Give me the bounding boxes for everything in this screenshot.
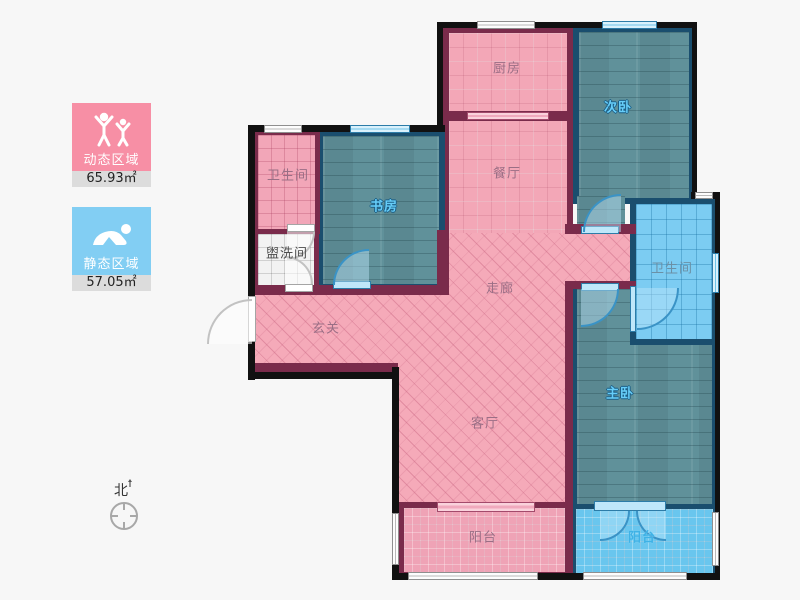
compass: 北 xyxy=(100,478,148,534)
entry-door-arc xyxy=(207,299,252,344)
label-corridor: 走廊 xyxy=(486,278,514,297)
label-dining: 餐厅 xyxy=(493,163,521,182)
outer-wall xyxy=(437,22,443,132)
label-bedroom-second: 次卧 xyxy=(604,97,632,116)
legend-static-label: 静态区域 xyxy=(83,253,139,275)
window xyxy=(602,21,657,29)
window xyxy=(712,512,719,566)
kitchen-pass-window xyxy=(467,112,549,120)
wall-east-spine xyxy=(565,281,573,580)
legend-static-area: 57.05㎡ xyxy=(72,275,151,291)
label-study: 书房 xyxy=(370,196,398,215)
label-washroom: 盥洗间 xyxy=(266,243,308,262)
window xyxy=(477,21,535,29)
door-opening-bathroom-top xyxy=(287,224,315,232)
window xyxy=(350,125,410,133)
legend-card-dynamic[interactable]: 动态区域 65.93㎡ xyxy=(72,103,151,187)
label-bathroom-top: 卫生间 xyxy=(267,165,309,184)
legend-dynamic-label: 动态区域 xyxy=(83,149,139,171)
legend-dynamic-area: 65.93㎡ xyxy=(72,171,151,187)
door-leaf-bathroom-right xyxy=(630,286,636,332)
window xyxy=(712,253,719,293)
window xyxy=(583,572,687,580)
label-bathroom-right: 卫生间 xyxy=(651,258,693,277)
person-resting-icon xyxy=(89,217,135,251)
outer-wall xyxy=(437,22,697,28)
outer-wall xyxy=(692,22,697,198)
window xyxy=(392,513,399,565)
label-entry: 玄关 xyxy=(312,318,340,337)
room-bedroom-second xyxy=(573,26,695,204)
static-zone-swatch: 静态区域 xyxy=(72,207,151,275)
door-opening-washroom xyxy=(285,284,313,292)
legend-card-static[interactable]: 静态区域 57.05㎡ xyxy=(72,207,151,291)
outer-wall xyxy=(248,372,399,379)
window xyxy=(264,125,302,133)
wall-corridor-west xyxy=(437,230,449,292)
master-balcony-door xyxy=(594,501,666,511)
label-balcony-left: 阳台 xyxy=(469,527,497,546)
label-balcony-right: 阳台 xyxy=(628,527,656,546)
label-bedroom-master: 主卧 xyxy=(606,383,634,402)
label-kitchen: 厨房 xyxy=(493,58,521,77)
balcony-left-slider xyxy=(437,502,535,512)
window xyxy=(695,192,713,199)
people-active-icon xyxy=(89,111,135,147)
dynamic-zone-swatch: 动态区域 xyxy=(72,103,151,171)
compass-north-text: 北 xyxy=(114,483,128,499)
window xyxy=(408,572,538,580)
label-living: 客厅 xyxy=(471,413,499,432)
